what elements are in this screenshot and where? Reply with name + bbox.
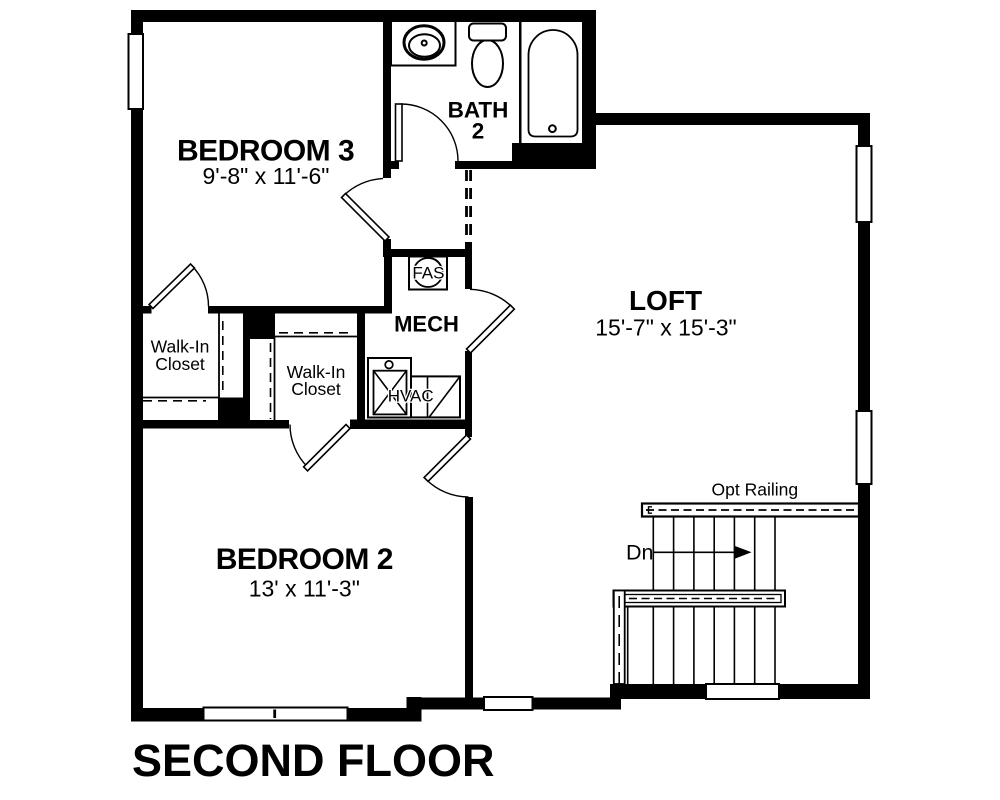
svg-text:LOFT: LOFT [629, 285, 702, 316]
svg-text:13' x 11'-3": 13' x 11'-3" [249, 576, 360, 602]
svg-text:SECOND FLOOR: SECOND FLOOR [132, 735, 495, 786]
svg-text:Closet: Closet [291, 379, 341, 399]
svg-text:9'-8" x 11'-6": 9'-8" x 11'-6" [203, 163, 330, 189]
svg-text:Opt Railing: Opt Railing [712, 480, 799, 500]
svg-text:BEDROOM 2: BEDROOM 2 [216, 543, 393, 576]
svg-text:Closet: Closet [155, 354, 205, 374]
svg-text:15'-7" x 15'-3": 15'-7" x 15'-3" [595, 315, 736, 341]
svg-text:MECH: MECH [394, 312, 459, 337]
svg-text:2: 2 [472, 119, 485, 144]
svg-text:FAS: FAS [412, 264, 444, 283]
svg-text:HVAC: HVAC [388, 387, 434, 406]
svg-text:Dn: Dn [626, 541, 653, 565]
